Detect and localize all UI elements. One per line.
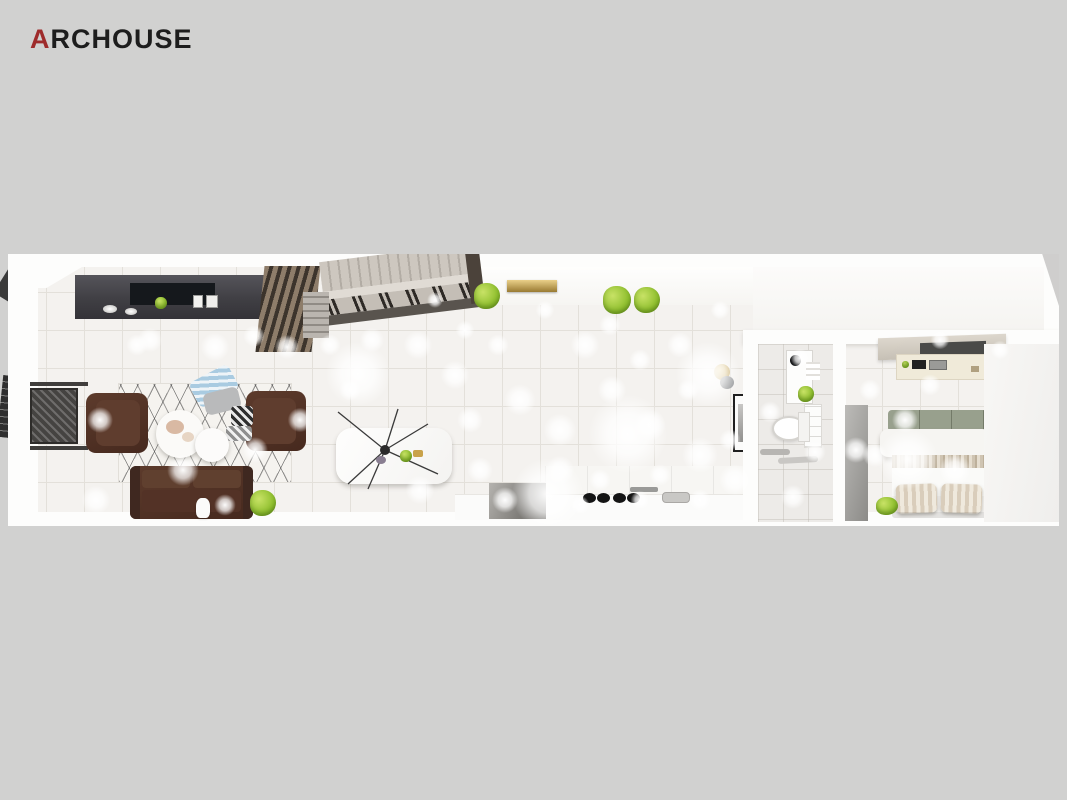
ceiling-light-bloom <box>483 330 513 360</box>
bathroom-round-decor <box>790 355 801 366</box>
towel-rail-1 <box>760 449 790 455</box>
ceiling-light-bloom <box>662 327 698 363</box>
table-plant-decor <box>400 450 412 462</box>
ceiling-light-bloom <box>195 327 235 367</box>
ceiling-light-bloom <box>592 370 632 410</box>
armchair-left-seat <box>96 400 140 446</box>
page-background: ARCHOUSE <box>0 0 1067 800</box>
armchair-right <box>246 391 306 451</box>
ceiling-light-bloom <box>133 323 167 357</box>
ac-wall-unit <box>896 354 991 380</box>
window-upper <box>995 280 1046 339</box>
appliance-panel <box>489 483 546 519</box>
sofa-back-cushion-2 <box>193 470 241 488</box>
window-lower <box>1008 395 1050 468</box>
wall-planter-2 <box>603 286 631 314</box>
leather-sofa <box>130 466 253 519</box>
curtain-drape-bottom <box>28 468 92 514</box>
sofa-seat <box>142 490 241 512</box>
table-dish <box>182 432 194 442</box>
storage-niche-2 <box>799 505 834 523</box>
shelf-frame-2 <box>206 295 218 308</box>
gas-burner-1 <box>583 493 596 503</box>
staircase <box>305 254 484 328</box>
white-vase <box>196 498 210 518</box>
dried-flowers-decor <box>166 420 184 434</box>
unit-decor-photo <box>929 360 947 370</box>
ceiling-light-bloom <box>355 323 389 357</box>
floorplan-render <box>8 254 1059 526</box>
striped-pillow-left <box>896 483 938 513</box>
unit-decor-frame <box>912 360 926 369</box>
gas-burner-3 <box>613 493 626 503</box>
ceiling-light-bloom <box>335 375 365 405</box>
unit-decor-plant <box>902 361 909 368</box>
gas-burner-2 <box>597 493 610 503</box>
tv-wall-cabinet <box>75 275 281 319</box>
sconce-shade <box>720 376 734 389</box>
gas-burner-4 <box>627 493 640 503</box>
table-gold-decor <box>413 450 423 457</box>
coffee-table-small <box>195 428 229 462</box>
ceiling-light-bloom <box>452 317 478 343</box>
toilet-tank <box>798 412 810 442</box>
radiator-frame-top <box>30 382 88 386</box>
unit-decor-mark <box>971 366 979 372</box>
table-purple-decor <box>376 456 386 464</box>
cabinet-downlight-2 <box>125 308 137 315</box>
checkered-pillow-dark <box>231 406 253 426</box>
striped-pillow-right <box>941 483 983 513</box>
spider-chandelier <box>328 404 458 494</box>
ceiling-light-bloom <box>855 375 885 405</box>
radiator-mesh <box>30 388 78 444</box>
bathroom-left-wall <box>743 330 758 522</box>
armchair-right-seat <box>252 398 296 444</box>
shelf-plant <box>155 297 167 309</box>
sofa-back-cushion-1 <box>142 470 190 488</box>
logo-letter-a: A <box>30 24 51 54</box>
ceiling-light-bloom <box>435 355 475 395</box>
wall-top <box>8 254 1059 267</box>
wall-planter-3 <box>634 287 660 313</box>
storage-niche-1 <box>757 505 795 523</box>
stair-landing-steps <box>303 292 329 338</box>
gold-wall-shelf <box>507 280 557 292</box>
archouse-logo: ARCHOUSE <box>30 24 193 55</box>
ceiling-light-bloom <box>628 403 672 447</box>
cabinet-downlight-1 <box>103 305 117 313</box>
wardrobe-panel <box>845 405 868 521</box>
ceiling-light-bloom <box>673 375 703 405</box>
ceiling-light-bloom <box>537 407 583 453</box>
wall-planter-1 <box>474 283 500 309</box>
ceiling-light-bloom <box>595 310 625 340</box>
ceiling-light-bloom <box>498 378 542 422</box>
striped-blanket <box>892 455 986 468</box>
sofa-armrest-left <box>130 466 140 519</box>
ceiling-light-bloom <box>398 325 438 365</box>
ceiling-light-bloom <box>565 325 605 365</box>
kitchen-sink <box>662 492 690 503</box>
bed-base-shadow <box>892 512 988 518</box>
ceiling-light-bloom <box>625 345 655 375</box>
ceiling-light-bloom <box>122 330 152 360</box>
checkered-pillow-light <box>226 426 252 441</box>
folded-towels <box>806 362 820 380</box>
shelf-frame-1 <box>193 295 203 308</box>
folded-duvet <box>880 429 990 457</box>
kitchen-faucet <box>630 487 658 492</box>
logo-text: RCHOUSE <box>51 24 193 54</box>
radiator-frame-bottom <box>30 446 88 450</box>
armchair-left <box>86 393 148 453</box>
